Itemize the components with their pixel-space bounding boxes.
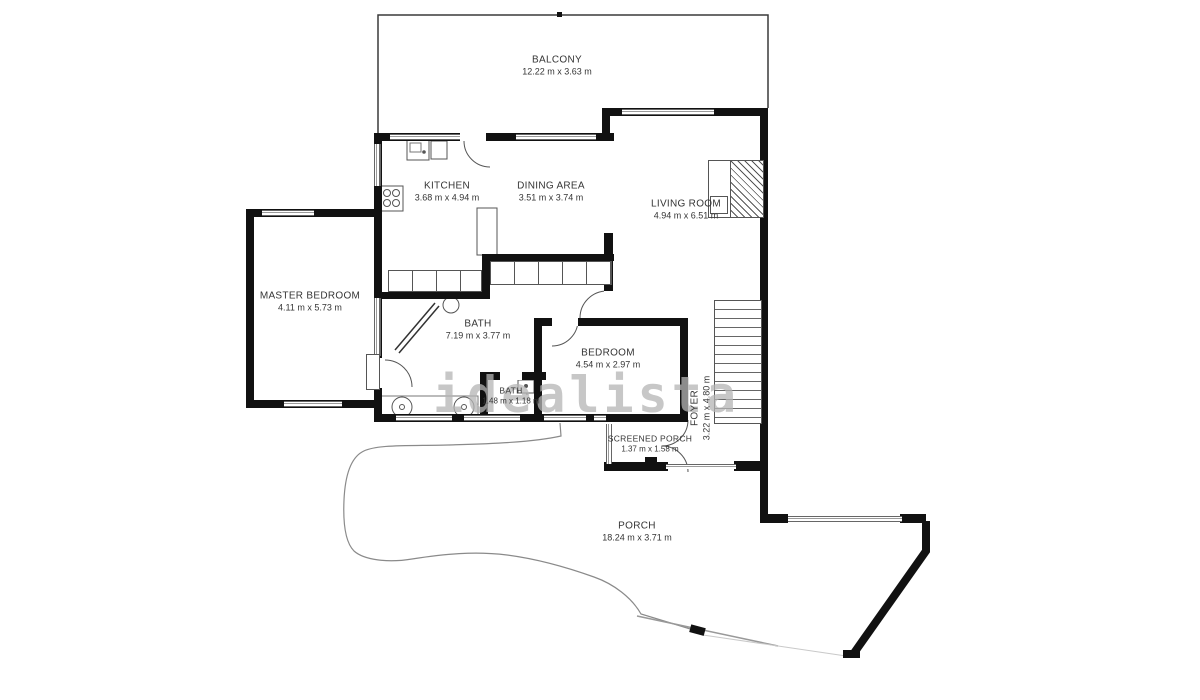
- wall-master-left: [246, 209, 254, 408]
- window-kitchen-top-2: [516, 134, 596, 140]
- wall-kitchen-bottom: [374, 292, 486, 299]
- master-door-arc: [385, 360, 412, 387]
- window-kitchen-top-1: [390, 134, 460, 140]
- angled-wall-foot: [843, 650, 860, 658]
- wall-porch-bottom: [604, 462, 668, 471]
- dining-cabinets: [490, 261, 612, 285]
- floorplan-canvas: idealista BALCONY 12.22 m x 3.63 m KITCH…: [0, 0, 1200, 700]
- room-label-balcony: BALCONY 12.22 m x 3.63 m: [522, 54, 592, 79]
- room-label-bath-small: BATH 1.48 m x 1.18 m: [482, 385, 539, 406]
- room-label-dining-area: DINING AREA 3.51 m x 3.74 m: [517, 180, 585, 205]
- porch-faint-line: [703, 635, 846, 656]
- kitchen-cabinets: [388, 270, 482, 292]
- wall-foyer-bottom: [734, 461, 764, 471]
- room-label-bedroom: BEDROOM 4.54 m x 2.97 m: [576, 347, 641, 372]
- room-label-porch: PORCH 18.24 m x 3.71 m: [602, 520, 672, 545]
- door-gap-bedroom: [552, 318, 578, 326]
- railing-porch-right: [788, 516, 902, 522]
- porch-step-mark: [689, 624, 706, 636]
- bath-diagonal-wall: [395, 303, 439, 353]
- room-label-master-bedroom: MASTER BEDROOM 4.11 m x 5.73 m: [260, 290, 360, 315]
- kitchen-island: [477, 208, 497, 255]
- entry-threshold: [645, 457, 657, 470]
- window-master-top: [262, 210, 314, 216]
- window-kitchen-left: [374, 144, 381, 186]
- room-label-foyer: FOYER 3.22 m x 4.80 m: [689, 376, 714, 441]
- screen-porch-bottom: [666, 464, 736, 469]
- door-gap-dining: [460, 133, 486, 141]
- fireplace-hatch: [730, 160, 764, 218]
- window-master-bottom: [284, 401, 342, 407]
- master-door-jamb: [366, 354, 380, 390]
- wall-dining-cab-top: [482, 254, 614, 261]
- stove-icon: [380, 186, 403, 211]
- room-label-bath: BATH 7.19 m x 3.77 m: [446, 318, 511, 343]
- room-label-living-room: LIVING ROOM 4.94 m x 6.51 m: [651, 198, 721, 223]
- window-bath-left: [374, 298, 381, 356]
- wall-corner-se: [900, 514, 926, 523]
- kitchen-appliance-icon: [431, 141, 447, 159]
- dining-door-arc: [464, 141, 490, 167]
- hall-door-arc: [580, 291, 607, 318]
- door-gap-hall: [604, 291, 613, 318]
- wall-top-connector: [602, 108, 610, 141]
- balcony-tick: [557, 12, 562, 17]
- angled-exterior-wall: [854, 521, 926, 653]
- toilet-icon: [443, 297, 459, 313]
- porch-edge-line: [637, 616, 778, 646]
- room-label-screened-porch: SCREENED PORCH 1.37 m x 1.58 m: [608, 433, 693, 454]
- window-living-top: [622, 109, 714, 115]
- room-label-kitchen: KITCHEN 3.68 m x 4.94 m: [415, 180, 480, 205]
- wall-corner-sw: [760, 514, 788, 523]
